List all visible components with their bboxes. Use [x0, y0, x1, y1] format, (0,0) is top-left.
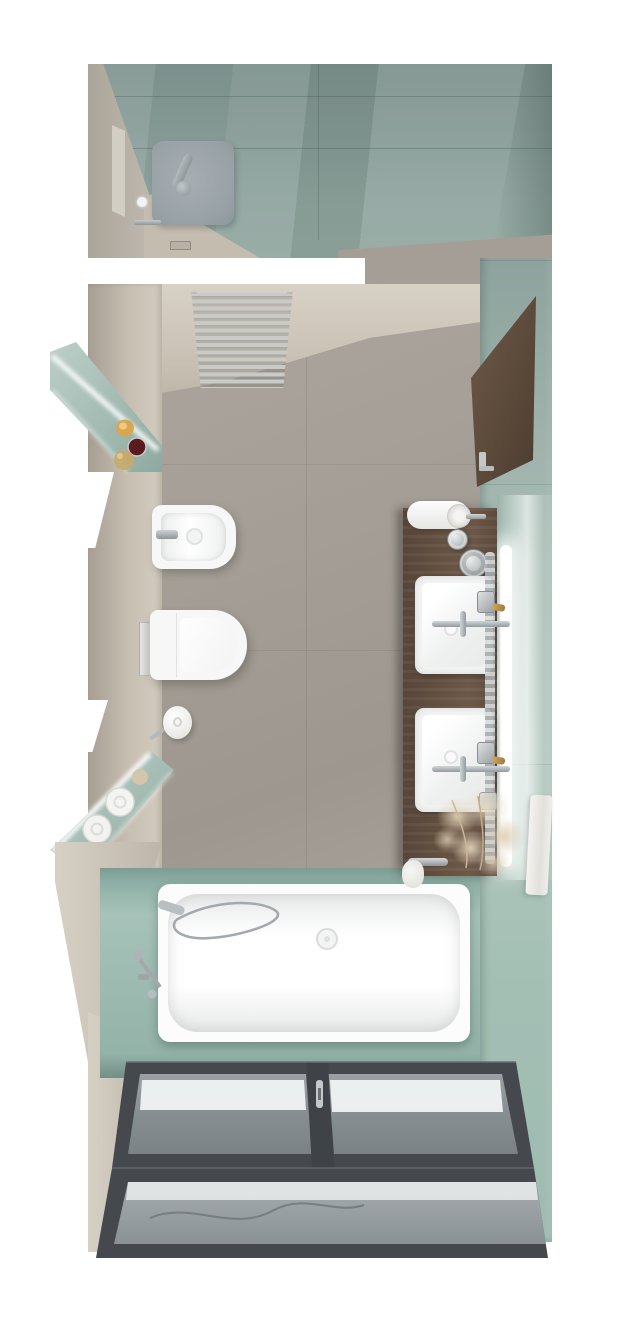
wall-opening-gap — [88, 258, 365, 284]
towel-rail-top — [466, 514, 486, 519]
toilet-lid-sheen — [180, 618, 237, 672]
rain-shower-head-icon — [152, 141, 234, 225]
bathtub-inner — [168, 894, 460, 1032]
basin-faucet-bottom — [432, 766, 510, 772]
floor-strip — [365, 256, 480, 284]
bidet-drain — [186, 528, 203, 545]
shower-area — [88, 64, 552, 258]
glass-hose-reflection — [150, 1203, 364, 1219]
wall-corner-shade — [492, 64, 552, 258]
bathroom-render — [0, 0, 629, 1321]
pampas-plant — [428, 778, 534, 884]
basin-drain-bottom — [444, 750, 458, 764]
soap-jar-small — [447, 529, 468, 550]
handle-slot — [318, 1088, 321, 1100]
toilet-paper-holder — [150, 704, 198, 750]
shower-door-sliver — [112, 125, 125, 217]
towel-on-rail — [402, 860, 424, 888]
shower-mixer-bar — [134, 220, 161, 225]
glass-door-left — [128, 1074, 312, 1154]
basin-faucet-top — [432, 621, 510, 627]
toilet-lid-seam — [176, 613, 177, 677]
left-wall — [88, 284, 162, 868]
tile-seam — [88, 96, 552, 97]
bathtub-drain — [316, 928, 338, 950]
shower-drain — [170, 241, 191, 250]
bidet-faucet — [156, 530, 178, 539]
glass-door-right-reflection — [330, 1080, 503, 1112]
glass-bottom-reflection — [126, 1182, 538, 1200]
faucet-cross-top — [460, 611, 466, 637]
bathtub — [158, 884, 470, 1042]
glass-door-handle — [316, 1080, 323, 1108]
rolled-towel — [407, 501, 469, 529]
soap-jar-large — [459, 549, 488, 578]
flush-plate — [139, 622, 150, 676]
wall-hung-toilet — [150, 610, 247, 680]
paper-roll-core — [173, 717, 182, 727]
bidet — [152, 505, 236, 569]
tile-seam — [318, 64, 319, 240]
towel-radiator — [183, 292, 301, 388]
glass-door-left-reflection — [140, 1080, 306, 1110]
shower-control-knob — [137, 197, 147, 207]
shower-arm-joint — [176, 181, 191, 196]
